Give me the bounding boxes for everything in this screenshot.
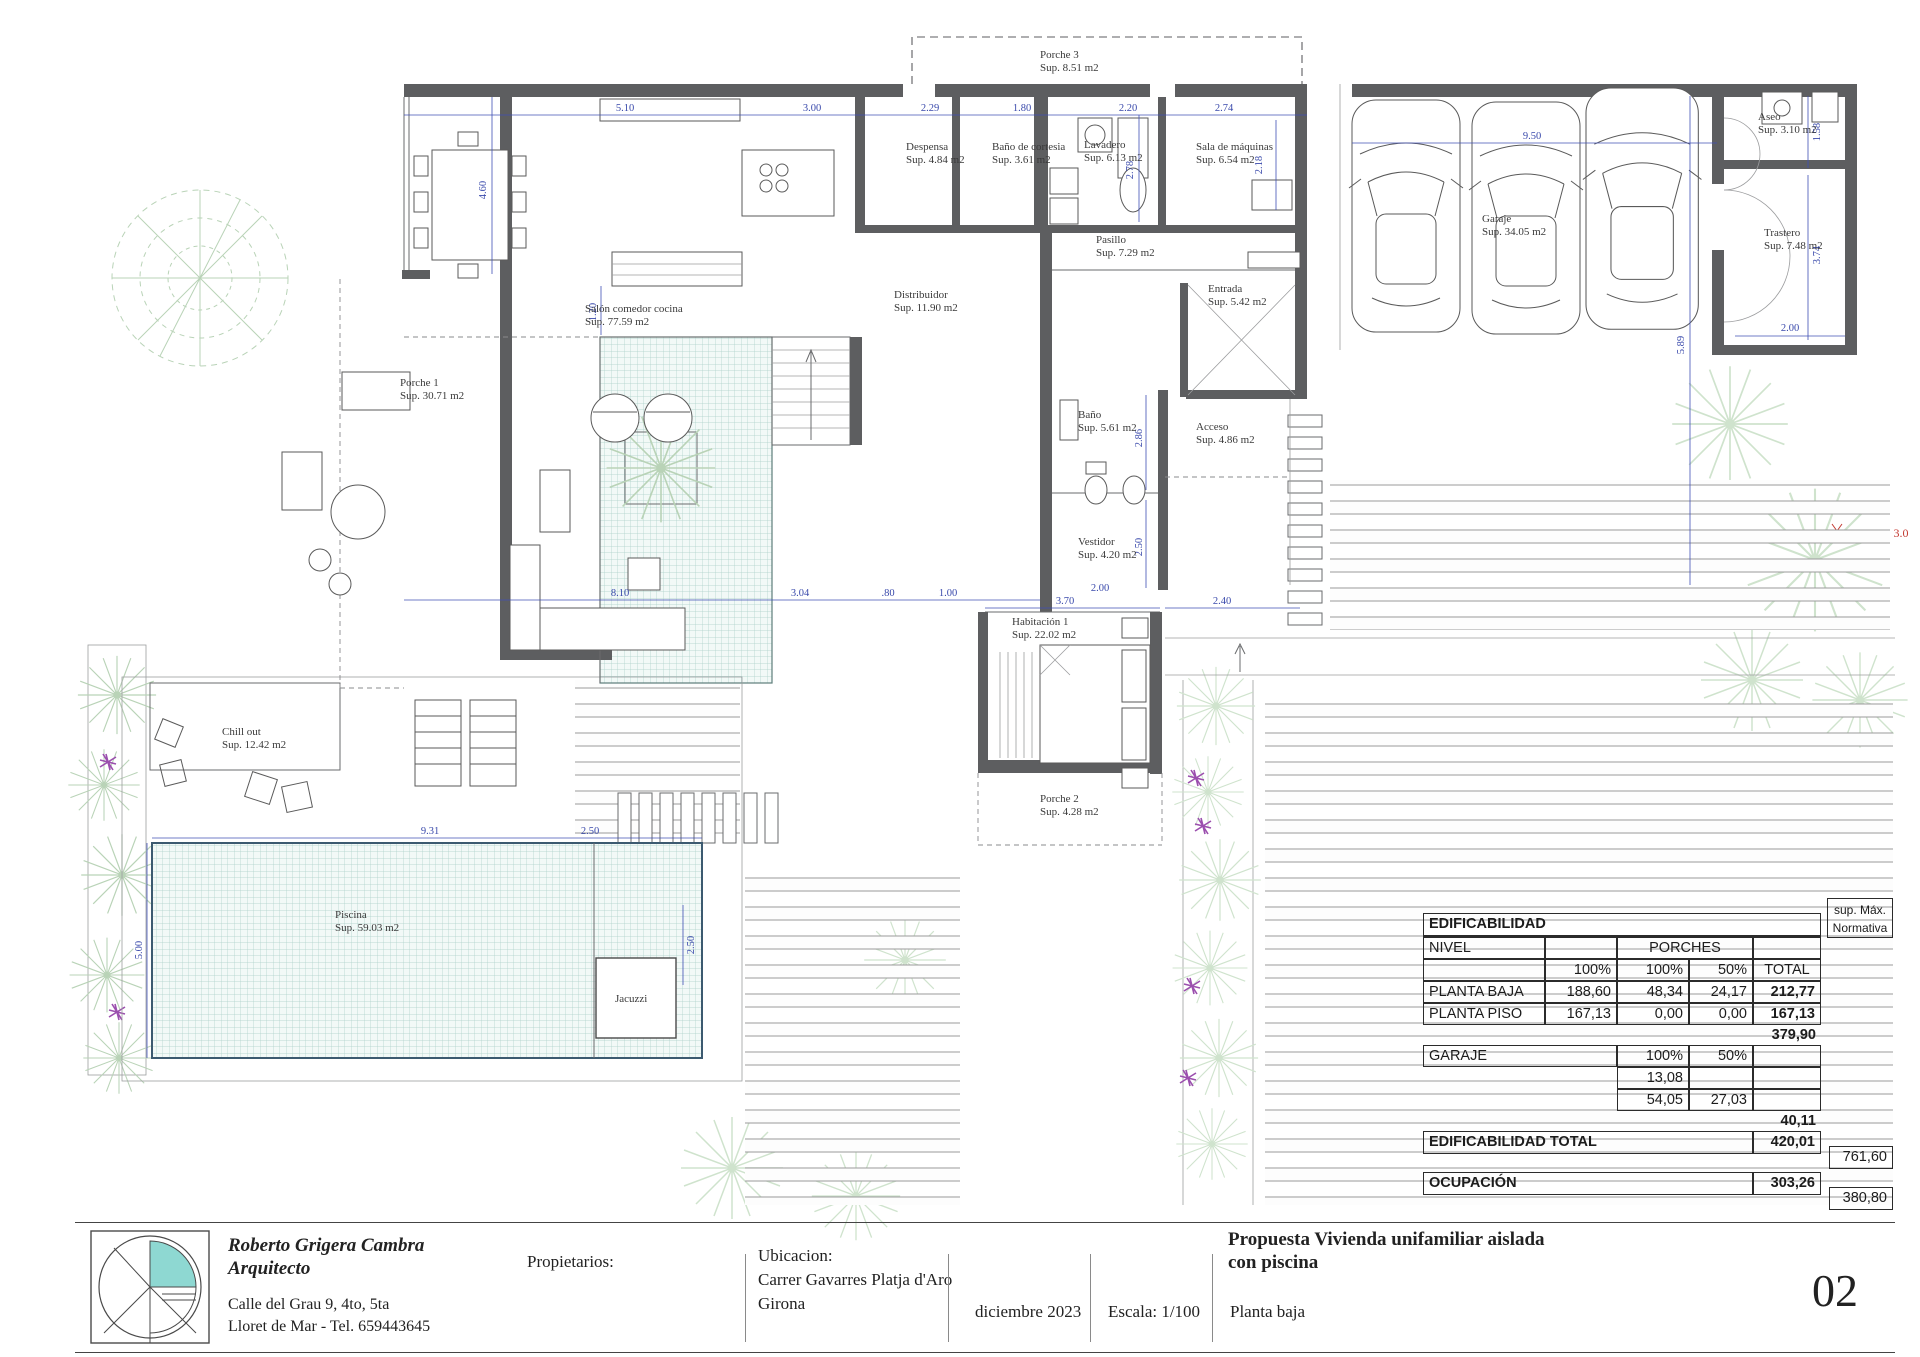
- divider: [1212, 1254, 1213, 1342]
- car-icon: [1349, 100, 1463, 332]
- dim-label: 2.74: [1215, 103, 1234, 114]
- dim-label: 2.18: [1254, 156, 1265, 174]
- dim-label: 2.50: [581, 826, 599, 837]
- title-block-top-line: [75, 1222, 1895, 1223]
- garaje-col-100: 100%: [1617, 1045, 1689, 1067]
- garaje-subtotal: 40,11: [1753, 1111, 1821, 1133]
- project-title: Propuesta Vivienda unifamiliar aislada c…: [1228, 1228, 1545, 1274]
- stairs-arrow-icon: [806, 350, 816, 440]
- room-sup: Sup. 3.10 m2: [1758, 124, 1817, 136]
- cell: 48,34: [1617, 981, 1689, 1003]
- owners-label: Propietarios:: [527, 1252, 614, 1272]
- garaje-cell: 54,05: [1617, 1089, 1689, 1111]
- room-sup: Sup. 6.54 m2: [1196, 154, 1255, 166]
- project-title-line2: con piscina: [1228, 1251, 1545, 1274]
- col-header-total: TOTAL: [1753, 959, 1821, 981]
- title-block-bottom-line: [75, 1352, 1895, 1353]
- dim-label: 2.00: [1091, 583, 1109, 594]
- garaje-cell: 27,03: [1689, 1089, 1753, 1111]
- date-label: diciembre 2023: [975, 1302, 1081, 1322]
- dim-label: 8.10: [611, 588, 629, 599]
- room-sup: Sup. 30.71 m2: [400, 390, 464, 402]
- dim-label: 3.70: [1056, 596, 1074, 607]
- dim-label: 2.29: [921, 103, 939, 114]
- cell-total: 212,77: [1753, 981, 1821, 1003]
- ocupacion-max-value: 380,80: [1829, 1187, 1893, 1210]
- cell: 167,13: [1545, 1003, 1617, 1025]
- room-sup: Sup. 4.28 m2: [1040, 806, 1099, 818]
- nivel-header: NIVEL: [1423, 937, 1545, 959]
- room-sup: Sup. 34.05 m2: [1482, 226, 1546, 238]
- room-sup: Sup. 3.61 m2: [992, 154, 1051, 166]
- car-icon: [1583, 88, 1702, 329]
- tree-icon: [112, 190, 288, 366]
- dim-label: 5.89: [1676, 336, 1687, 354]
- flower-icon: [109, 1004, 125, 1020]
- room-label: Porche 3: [1040, 49, 1079, 61]
- ocupacion-label: OCUPACIÓN: [1423, 1172, 1753, 1195]
- room-sup: Sup. 5.42 m2: [1208, 296, 1267, 308]
- sup-max-line2: Normativa: [1828, 919, 1892, 937]
- room-sup: Sup. 4.86 m2: [1196, 434, 1255, 446]
- architect-role: Arquitecto: [228, 1257, 424, 1280]
- room-sup: Sup. 7.29 m2: [1096, 247, 1155, 259]
- architect-logo-icon: [90, 1230, 212, 1346]
- architect-name: Roberto Grigera Cambra: [228, 1234, 424, 1257]
- cell-total: 167,13: [1753, 1003, 1821, 1025]
- flower-icon: [1188, 770, 1204, 786]
- ocupacion-value: 303,26: [1753, 1172, 1821, 1195]
- room-label: Piscina: [335, 909, 367, 921]
- dim-label: 9.50: [1523, 131, 1541, 142]
- dim-label: 2.50: [686, 936, 697, 954]
- room-sup: Sup. 4.20 m2: [1078, 549, 1137, 561]
- room-label: Pasillo: [1096, 234, 1126, 246]
- dim-label: 2.00: [1781, 323, 1799, 334]
- table-row: PLANTA PISO 167,13 0,00 0,00 167,13: [1423, 1003, 1821, 1025]
- plantas-subtotal: 379,90: [1753, 1025, 1821, 1047]
- room-sup: Sup. 11.90 m2: [894, 302, 958, 314]
- location-line1: Carrer Gavarres Platja d'Aro: [758, 1268, 952, 1292]
- porches-header: PORCHES: [1617, 937, 1753, 959]
- edificability-max-value: 761,60: [1829, 1146, 1893, 1169]
- left-planter: [68, 645, 163, 1094]
- col-header-100-porches: 100%: [1617, 959, 1689, 981]
- room-sup: Sup. 6.13 m2: [1084, 152, 1143, 164]
- room-label: Porche 1: [400, 377, 439, 389]
- room-label: Sala de máquinas: [1196, 141, 1273, 153]
- room-sup: Sup. 7.48 m2: [1764, 240, 1823, 252]
- scale-label: Escala: 1/100: [1108, 1302, 1200, 1322]
- room-label: Aseo: [1758, 111, 1781, 123]
- dim-label: 3.04: [791, 588, 810, 599]
- room-sup: Sup. 5.61 m2: [1078, 422, 1137, 434]
- edificability-total-value: 420,01: [1753, 1131, 1821, 1154]
- garaje-cell: 13,08: [1617, 1067, 1689, 1089]
- room-label: Despensa: [906, 141, 948, 153]
- room-sup: Sup. 4.84 m2: [906, 154, 965, 166]
- address-line2: Lloret de Mar - Tel. 659443645: [228, 1316, 430, 1338]
- drawing-sheet: 5.10 3.00 2.29 1.80 2.20 2.74 9.50 5.89 …: [0, 0, 1920, 1357]
- divider: [948, 1254, 949, 1342]
- garaje-col-50: 50%: [1689, 1045, 1753, 1067]
- center-planting-strip: [1172, 667, 1261, 1205]
- cell: 24,17: [1689, 981, 1753, 1003]
- location-block: Ubicacion: Carrer Gavarres Platja d'Aro …: [758, 1244, 952, 1316]
- room-label: Entrada: [1208, 283, 1242, 295]
- architect-name-block: Roberto Grigera Cambra Arquitecto: [228, 1234, 424, 1280]
- architect-address: Calle del Grau 9, 4to, 5ta Lloret de Mar…: [228, 1294, 430, 1338]
- dim-label: 3.00: [803, 103, 821, 114]
- address-line1: Calle del Grau 9, 4to, 5ta: [228, 1294, 430, 1316]
- garaje-label: GARAJE: [1423, 1045, 1617, 1067]
- room-label: Trastero: [1764, 227, 1801, 239]
- col-header-50: 50%: [1689, 959, 1753, 981]
- row-label: PLANTA BAJA: [1423, 981, 1545, 1003]
- location-label: Ubicacion:: [758, 1244, 952, 1268]
- sheet-number: 02: [1812, 1264, 1858, 1317]
- room-sup: Sup. 22.02 m2: [1012, 629, 1076, 641]
- plan-name-label: Planta baja: [1230, 1302, 1305, 1322]
- col-header-100: 100%: [1545, 959, 1617, 981]
- room-label: Acceso: [1196, 421, 1229, 433]
- location-line2: Girona: [758, 1292, 952, 1316]
- dim-label: 2.20: [1119, 103, 1137, 114]
- dim-label: .80: [881, 588, 894, 599]
- cell: 188,60: [1545, 981, 1617, 1003]
- room-label: Salón comedor cocina: [585, 303, 683, 315]
- room-label: Distribuidor: [894, 289, 948, 301]
- dim-label: 4.60: [478, 181, 489, 199]
- room-sup: Sup. 59.03 m2: [335, 922, 399, 934]
- flower-icon: [100, 754, 116, 770]
- sup-max-line1: sup. Máx.: [1828, 901, 1892, 919]
- room-label: Jacuzzi: [615, 993, 647, 1005]
- stairs: [772, 337, 862, 445]
- porche3-outline: [912, 37, 1302, 84]
- walkway-arrow-icon: [1235, 644, 1245, 672]
- room-label: Lavadero: [1084, 139, 1126, 151]
- dim-label: 5.00: [134, 941, 145, 959]
- room-sup: Sup. 77.59 m2: [585, 316, 649, 328]
- table-title: EDIFICABILIDAD: [1423, 913, 1821, 937]
- edificability-total-label: EDIFICABILIDAD TOTAL: [1423, 1131, 1753, 1154]
- trellis-strip: [1288, 415, 1322, 625]
- room-sup: Sup. 12.42 m2: [222, 739, 286, 751]
- setback-dim-label: 3.0: [1894, 526, 1909, 540]
- divider: [745, 1254, 746, 1342]
- walkway: [1165, 638, 1895, 675]
- porch-furniture: [282, 372, 410, 595]
- dim-label: 2.40: [1213, 596, 1231, 607]
- room-label: Habitación 1: [1012, 616, 1069, 628]
- porche1-outline: [340, 279, 404, 688]
- room-label: Baño: [1078, 409, 1102, 421]
- room-sup: Sup. 8.51 m2: [1040, 62, 1099, 74]
- cars: [1349, 88, 1701, 334]
- table-row: PLANTA BAJA 188,60 48,34 24,17 212,77: [1423, 981, 1821, 1003]
- room-label: Baño de cortesia: [992, 141, 1065, 153]
- room-label: Vestidor: [1078, 536, 1115, 548]
- kitchen: [600, 99, 834, 286]
- sup-max-header: sup. Máx. Normativa: [1827, 898, 1893, 938]
- room-label: Porche 2: [1040, 793, 1079, 805]
- dim-label: 1.80: [1013, 103, 1031, 114]
- project-title-line1: Propuesta Vivienda unifamiliar aislada: [1228, 1228, 1545, 1251]
- bathroom-fixtures: [1060, 400, 1145, 504]
- room-label: Garaje: [1482, 213, 1511, 225]
- furniture: [282, 88, 1701, 788]
- cell: 0,00: [1617, 1003, 1689, 1025]
- room-label: Chill out: [222, 726, 261, 738]
- divider: [1090, 1254, 1091, 1342]
- cell: 0,00: [1689, 1003, 1753, 1025]
- row-label: PLANTA PISO: [1423, 1003, 1545, 1025]
- dim-label: 5.10: [616, 103, 634, 114]
- dim-label: 1.00: [939, 588, 957, 599]
- title-block: Roberto Grigera Cambra Arquitecto Calle …: [0, 1222, 1920, 1357]
- dim-label: 9.31: [421, 826, 439, 837]
- chill-furniture: [155, 700, 516, 812]
